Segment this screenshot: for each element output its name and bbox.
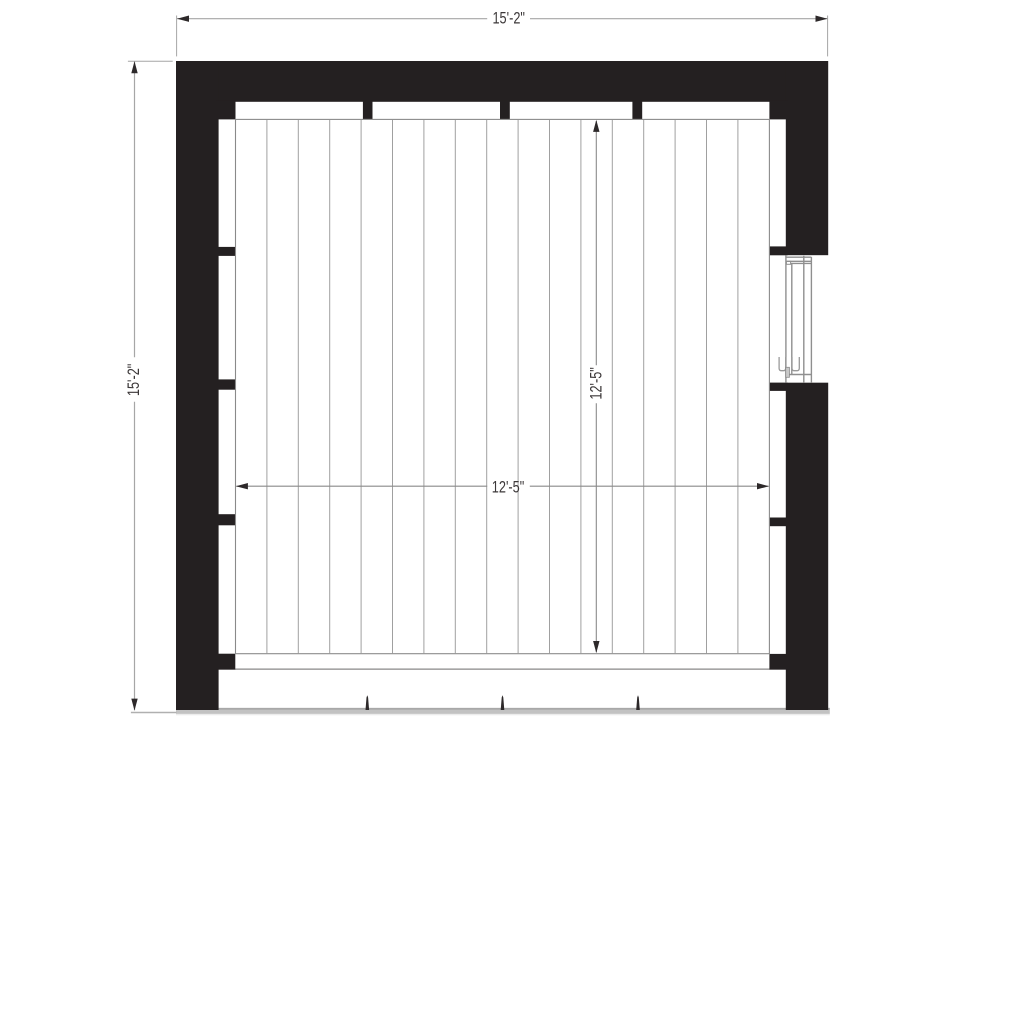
svg-text:12'-5": 12'-5": [492, 478, 524, 497]
svg-text:15'-2": 15'-2": [124, 364, 143, 396]
svg-text:15'-2": 15'-2": [492, 9, 524, 28]
svg-text:12'-5": 12'-5": [587, 367, 606, 399]
